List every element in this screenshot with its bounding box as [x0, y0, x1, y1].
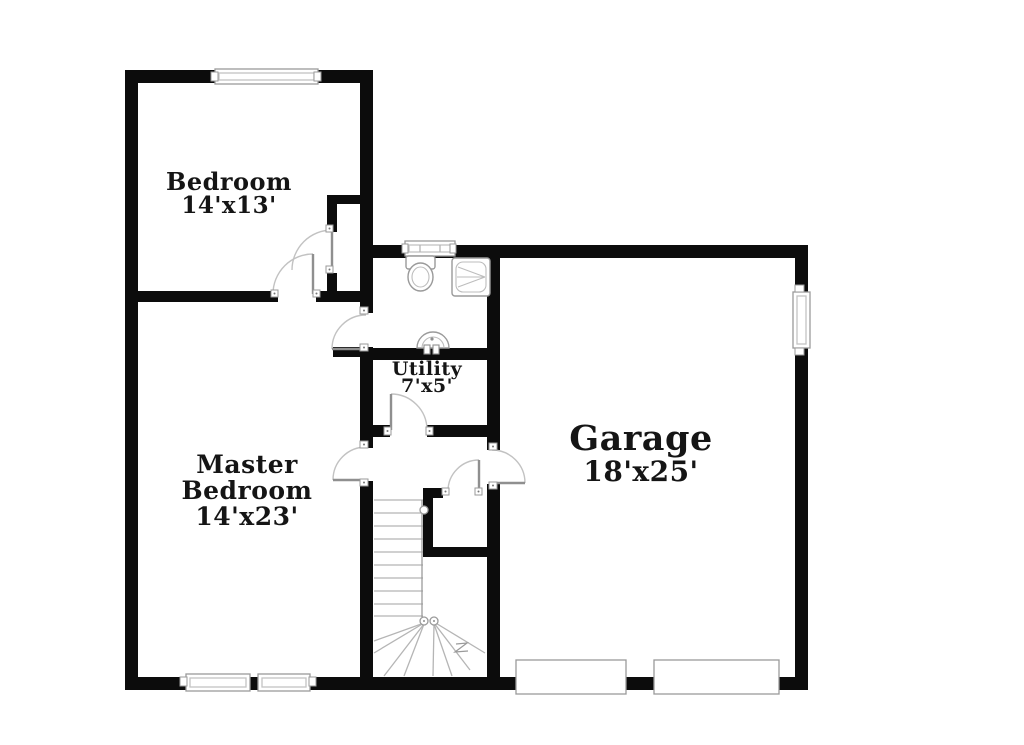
master-window-right: [258, 674, 310, 691]
wall-bedroom-closet-west-lower: [327, 273, 337, 302]
interior-walls: [138, 195, 500, 677]
bedroom-window: [215, 69, 318, 84]
master-hall-door: [333, 447, 366, 480]
wall-left: [125, 70, 138, 690]
toilet: [406, 256, 435, 291]
stair-direction-mark: [455, 643, 468, 652]
bathroom-fixtures: [406, 256, 490, 354]
wall-garage-west-lower: [487, 484, 500, 677]
wall-divider-left: [138, 291, 278, 302]
wall-bedroom-closet-top: [327, 195, 363, 204]
stairs-closet-door: [448, 460, 479, 491]
garage-side-window: [793, 292, 810, 348]
shower: [452, 258, 490, 296]
stair-winders: [374, 622, 485, 676]
wall-bedroom-east: [360, 70, 373, 313]
garage-door-left: [516, 660, 626, 694]
exterior-walls: [125, 70, 808, 690]
floor-plan-drawing: [0, 0, 1024, 745]
master-window-left: [186, 674, 250, 691]
garage-door-right: [654, 660, 779, 694]
stair-treads: [374, 500, 423, 616]
wall-stairs-closet-bottom: [423, 547, 487, 557]
hall-garage-door: [492, 450, 525, 483]
floor-plan: Bedroom 14'x13' Master Bedroom 14'x23' U…: [0, 0, 1024, 745]
bathroom-window: [405, 241, 455, 256]
wall-divider-right: [316, 291, 365, 302]
wall-stairs-closet-top: [423, 488, 443, 498]
utility-door: [391, 394, 427, 430]
wall-stair-west: [360, 481, 373, 677]
